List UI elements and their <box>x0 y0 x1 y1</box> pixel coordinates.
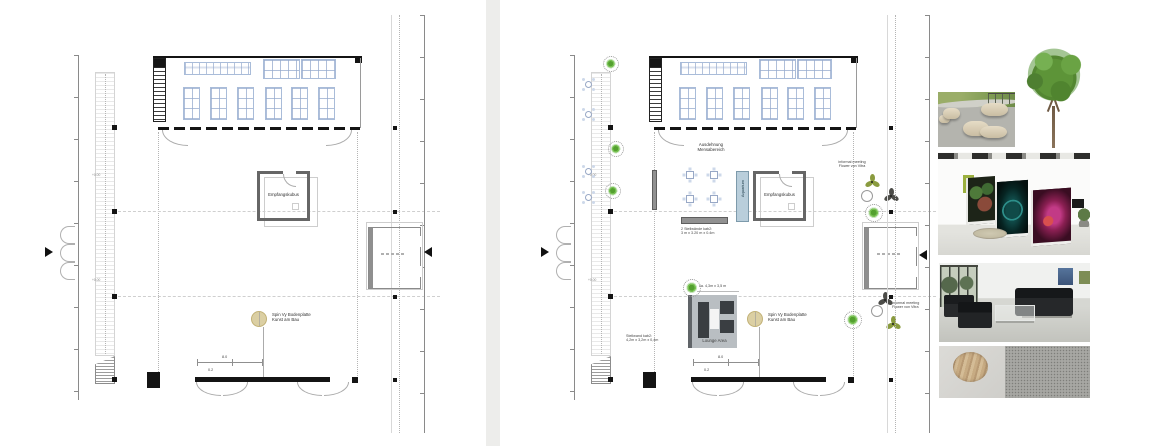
artwork-panel-green-red <box>968 176 995 225</box>
mensa-table-group <box>787 87 804 120</box>
bench-shape <box>980 126 1007 138</box>
mensa-counter <box>680 62 747 75</box>
lounge-island: Lounge Area <box>692 295 737 348</box>
door-arc <box>719 382 744 396</box>
green-artwork <box>1079 271 1090 284</box>
bench-shape <box>981 103 1008 116</box>
lounge-label: Lounge Area <box>693 338 736 343</box>
partition-wall-vertical <box>652 170 657 210</box>
partition1-label: Stellwand kab2: 4,2m x 3,2m x 0,4m <box>626 334 658 343</box>
terrace-round-table <box>585 81 592 88</box>
stone-inlay-oval <box>953 352 988 382</box>
mensa-extension-label: Ausdehnung Mensabereich <box>688 142 734 152</box>
photo-tree <box>1017 43 1090 148</box>
door-arc <box>556 262 571 280</box>
flower-chair-icon <box>865 175 879 189</box>
photo-material-stone <box>939 346 1005 398</box>
glass-coffee-table <box>995 305 1035 321</box>
lounge-table <box>710 309 719 329</box>
door-arc <box>658 130 684 146</box>
door-arc <box>820 382 845 396</box>
armchair <box>958 302 992 328</box>
reception-label: Empfangskubus <box>754 192 805 197</box>
terrace-round-table <box>585 194 592 201</box>
door-arc <box>793 382 818 396</box>
spin-plate-label: Spin Vy Bodenplatte Kunst am Bau <box>768 312 807 322</box>
axis-line <box>887 15 888 433</box>
informal-meeting-label: informal meeting Flower von Vitra <box>828 160 876 169</box>
dim-tick <box>758 359 759 366</box>
terrace-round-table <box>585 168 592 175</box>
column-marker <box>889 126 893 130</box>
door-opening <box>915 236 918 247</box>
reference-photo-column <box>935 40 1095 405</box>
photo-material-carpet <box>1005 346 1090 398</box>
axis-tick-line <box>925 15 930 433</box>
column-marker <box>608 294 613 299</box>
terrace-round-table <box>585 111 592 118</box>
spin-dim-line <box>759 327 760 377</box>
mensa-table-group <box>706 87 723 120</box>
side-table-circle <box>871 305 883 317</box>
mensa-table-group <box>733 87 750 120</box>
ceiling-shelf-band <box>938 153 1090 159</box>
partition2-label: 2 Stellwände kab2: 3 m x 3.20 m x 0.4m <box>681 227 714 236</box>
door-arc <box>556 226 571 244</box>
column-marker <box>889 295 893 299</box>
mensa-table-group <box>761 87 778 120</box>
tree-symbol <box>605 183 621 199</box>
vestibule-room <box>864 227 917 289</box>
dim-label: 0.2 <box>704 368 709 372</box>
axis-line <box>895 15 896 433</box>
tree-symbol <box>865 204 883 222</box>
cafe-square-table <box>710 171 718 179</box>
lounge-dim-label: ca. 4,3m x 3,5 m <box>699 284 726 288</box>
cafe-square-table <box>686 195 694 203</box>
lounge-sofa <box>698 302 709 338</box>
column-marker <box>889 210 893 214</box>
spin-marker-line <box>755 312 756 326</box>
column-marker <box>608 377 613 382</box>
door-arc <box>822 130 848 146</box>
floor-medallion <box>973 228 1007 239</box>
wall-stub <box>643 372 656 388</box>
dim-tick <box>728 359 729 366</box>
mensa-top-wall <box>649 56 858 58</box>
lounge-dim-line <box>697 291 739 292</box>
mensa-table-group <box>814 87 831 120</box>
flower-chair-icon <box>886 317 900 331</box>
dim-tick <box>693 359 694 366</box>
wall-screen <box>1072 199 1084 208</box>
door-opening <box>915 266 918 277</box>
column-marker <box>889 378 893 382</box>
column-marker <box>608 125 613 130</box>
informal-meeting-label: informal meeting Flower von Vitra <box>892 301 919 310</box>
door-arc <box>692 382 717 396</box>
vestibule-illegible-label <box>877 253 901 255</box>
potted-plant <box>1078 208 1090 227</box>
axis-line <box>853 132 854 378</box>
mensa-table-group <box>679 87 696 120</box>
elevator-shaft <box>649 58 662 122</box>
column-marker <box>848 377 854 383</box>
lounge-chair <box>720 320 734 333</box>
level-mark: +0.00 <box>588 279 596 283</box>
aquarium: Aquarium <box>736 171 749 222</box>
dim-label: 8.0 <box>718 355 723 359</box>
photo-lounge-sofas <box>939 263 1090 342</box>
door-arc <box>556 244 571 262</box>
dimension-line <box>693 362 759 363</box>
mensa-right-wall <box>856 58 857 128</box>
cafe-square-table <box>710 195 718 203</box>
tree-symbol <box>608 141 624 157</box>
aquarium-label: Aquarium <box>740 180 745 197</box>
entrance-arrow-icon <box>541 247 549 257</box>
partition-wall-horizontal <box>681 217 728 224</box>
blue-artwork <box>1058 268 1073 285</box>
tree-symbol <box>844 311 862 329</box>
reception-detail <box>788 203 795 210</box>
lounge-chair <box>720 301 734 314</box>
side-table-circle <box>861 190 873 202</box>
photo-gallery-exhibits <box>938 152 1090 255</box>
photo-outdoor-benches <box>938 92 1015 147</box>
ramp-centerline <box>601 74 602 354</box>
mensa-table-grid <box>759 59 796 79</box>
tree-trunk <box>1052 106 1055 148</box>
column-marker <box>608 209 613 214</box>
artwork-panel-magenta <box>1033 188 1071 247</box>
cafe-square-table <box>686 171 694 179</box>
bench-shape <box>943 108 960 119</box>
mensa-table-grid <box>797 59 832 79</box>
presentation-canvas: +0.00 +0.00 Empfangskubus <box>0 0 1155 446</box>
tree-symbol <box>603 56 619 72</box>
tree-symbol <box>683 279 701 297</box>
